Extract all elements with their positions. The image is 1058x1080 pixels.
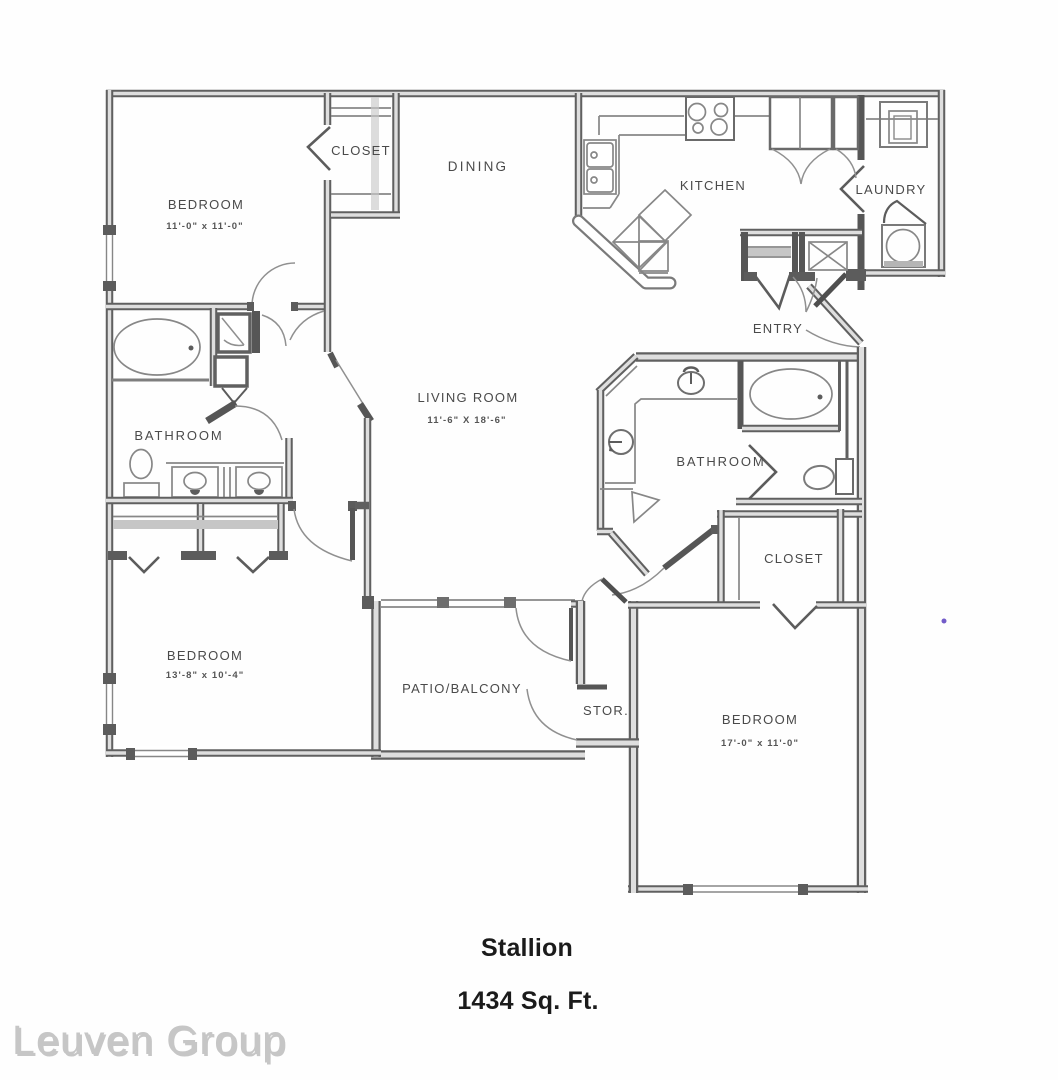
svg-text:CLOSET: CLOSET bbox=[331, 143, 391, 158]
svg-text:BEDROOM: BEDROOM bbox=[167, 648, 243, 663]
svg-text:BATHROOM: BATHROOM bbox=[676, 454, 765, 469]
svg-text:BEDROOM: BEDROOM bbox=[168, 197, 244, 212]
svg-text:17'-0" x 11'-0": 17'-0" x 11'-0" bbox=[721, 738, 799, 749]
svg-text:CLOSET: CLOSET bbox=[764, 551, 824, 566]
svg-text:1434 Sq. Ft.: 1434 Sq. Ft. bbox=[457, 987, 598, 1015]
svg-text:13'-8" x 10'-4": 13'-8" x 10'-4" bbox=[166, 670, 245, 681]
svg-text:BATHROOM: BATHROOM bbox=[134, 428, 223, 443]
svg-text:LAUNDRY: LAUNDRY bbox=[856, 182, 927, 197]
svg-text:BEDROOM: BEDROOM bbox=[722, 712, 798, 727]
svg-text:LIVING ROOM: LIVING ROOM bbox=[418, 390, 519, 405]
svg-text:KITCHEN: KITCHEN bbox=[680, 178, 746, 193]
svg-text:DINING: DINING bbox=[448, 159, 508, 174]
svg-text:PATIO/BALCONY: PATIO/BALCONY bbox=[402, 681, 522, 696]
svg-text:Stallion: Stallion bbox=[481, 934, 573, 962]
svg-text:Leuven Group: Leuven Group bbox=[12, 1017, 286, 1063]
svg-text:STOR.: STOR. bbox=[583, 703, 629, 718]
svg-text:ENTRY: ENTRY bbox=[753, 321, 803, 336]
svg-text:11'-0" x 11'-0": 11'-0" x 11'-0" bbox=[166, 221, 244, 232]
svg-text:11'-6" X 18'-6": 11'-6" X 18'-6" bbox=[427, 415, 506, 426]
